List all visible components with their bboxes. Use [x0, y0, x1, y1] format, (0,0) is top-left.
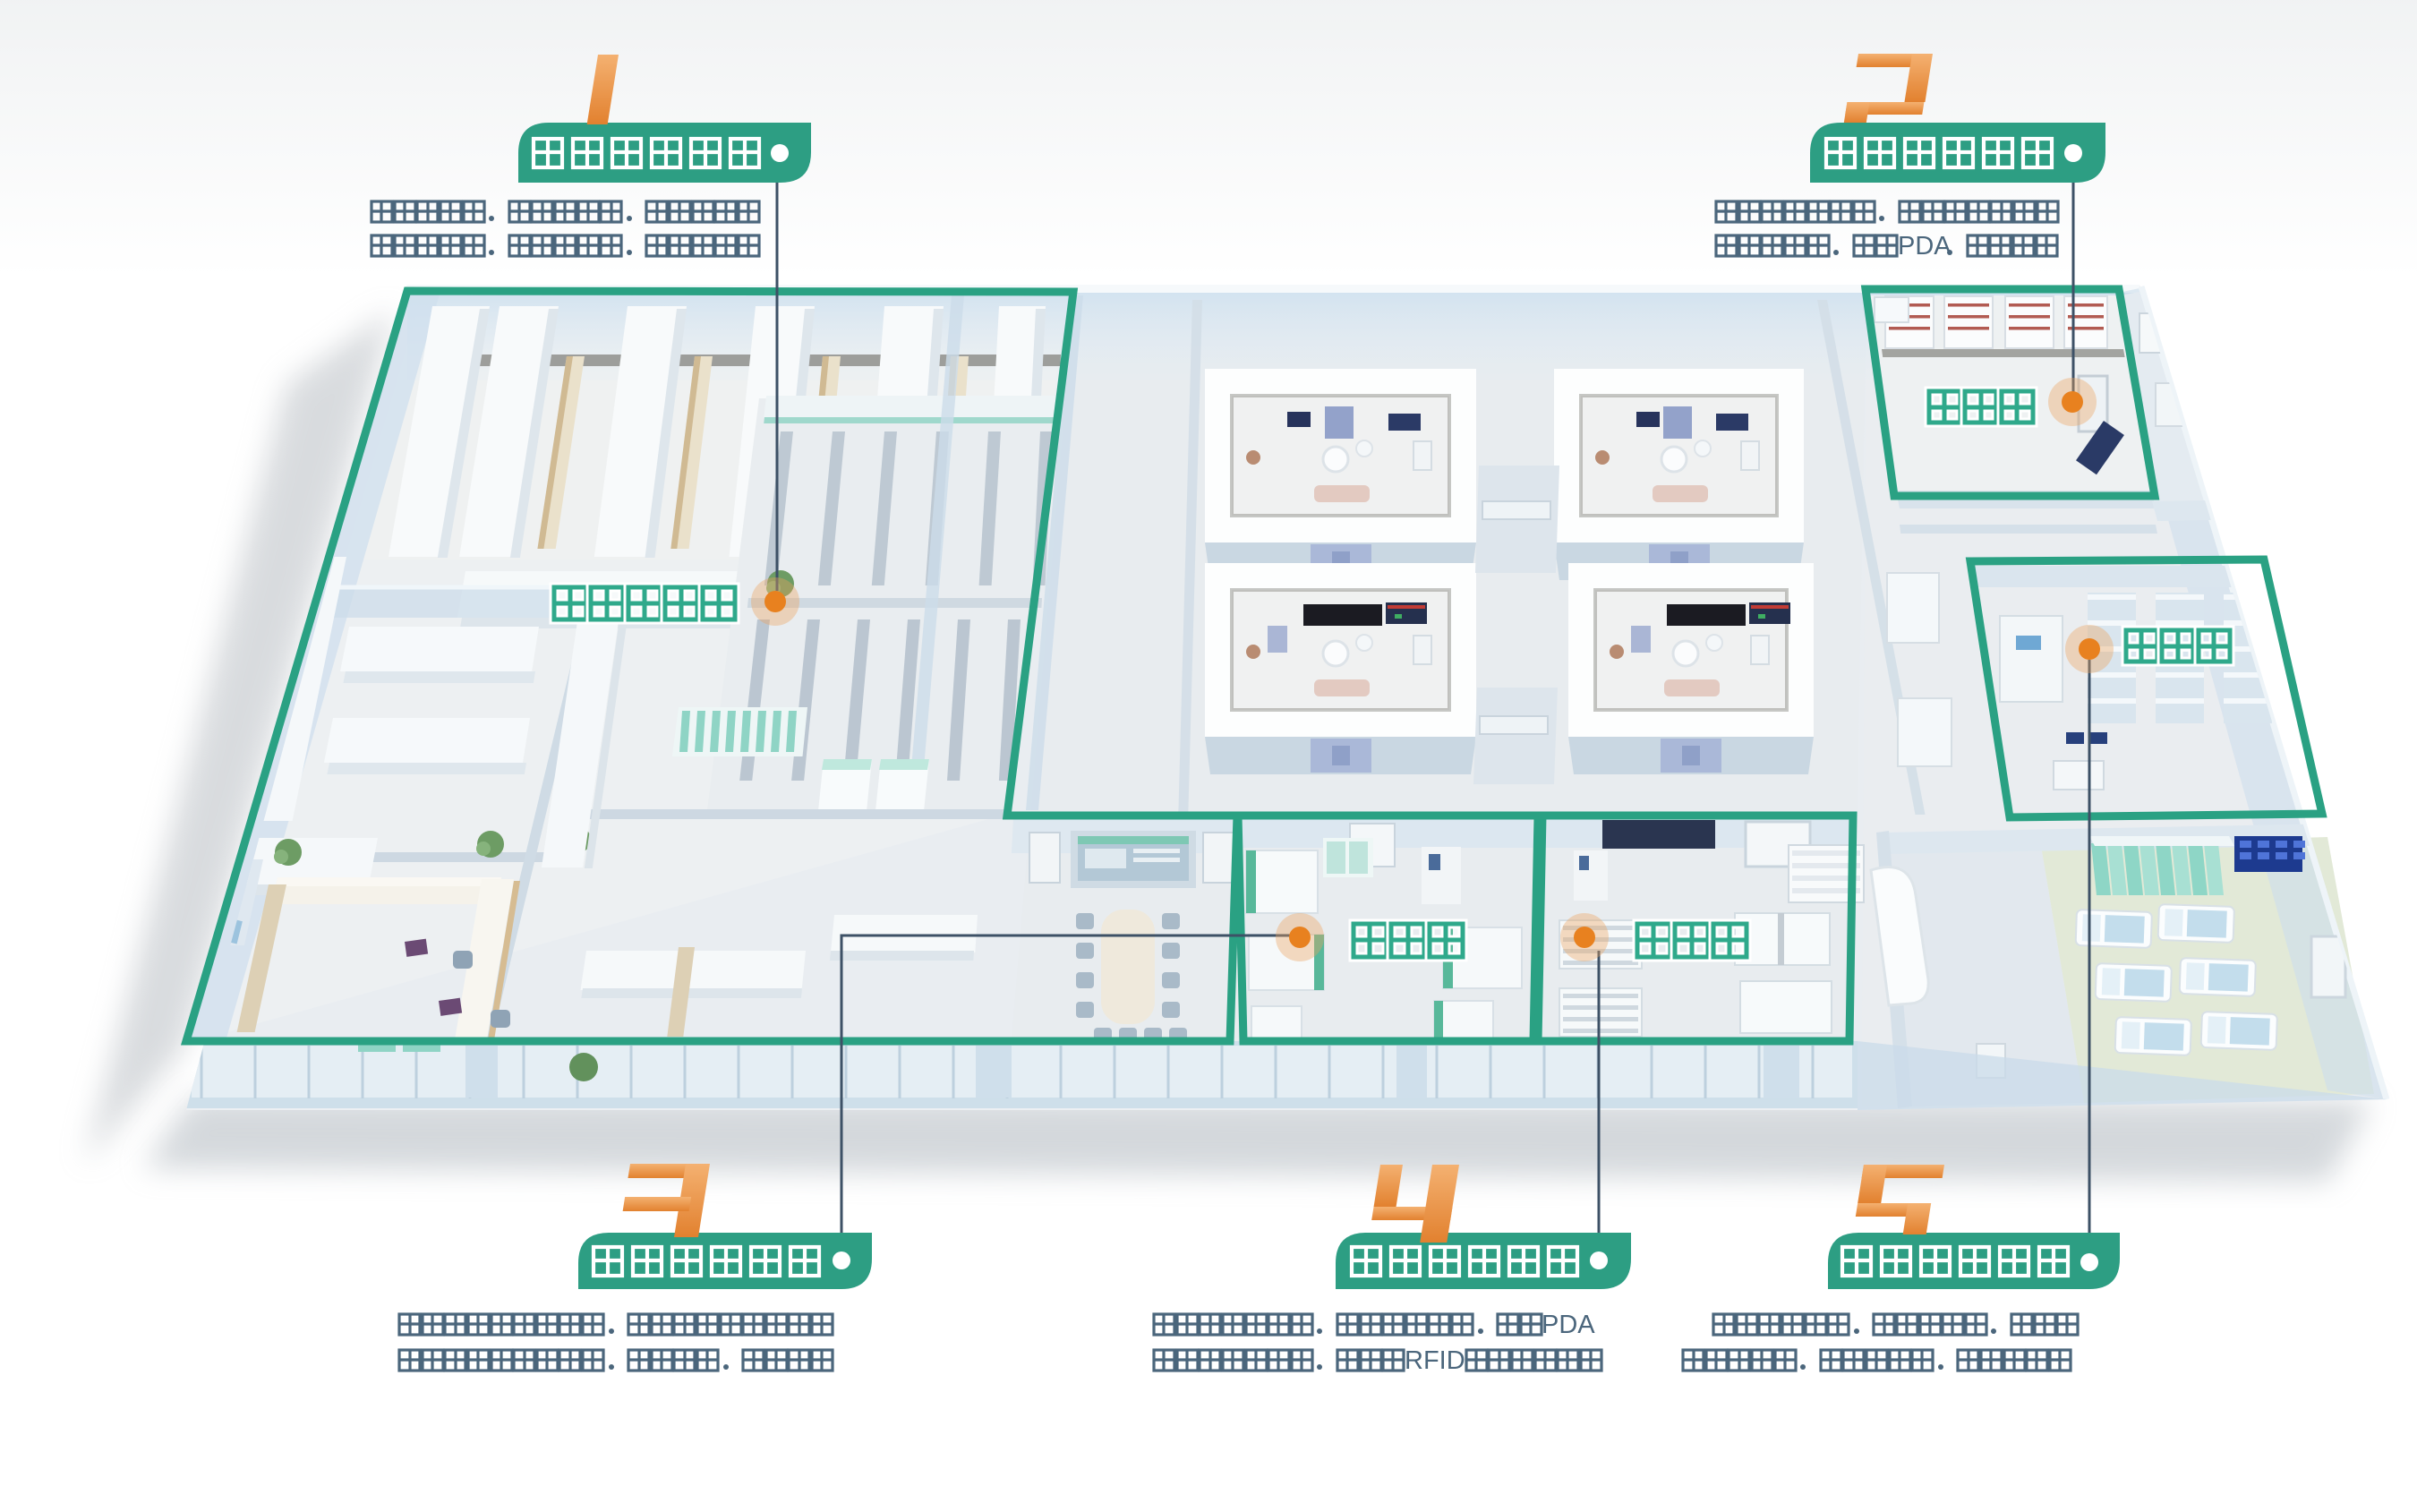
- svg-text:PDA: PDA: [1542, 1311, 1595, 1339]
- svg-text:PDA: PDA: [1898, 232, 1952, 261]
- svg-text:RFID: RFID: [1405, 1346, 1465, 1375]
